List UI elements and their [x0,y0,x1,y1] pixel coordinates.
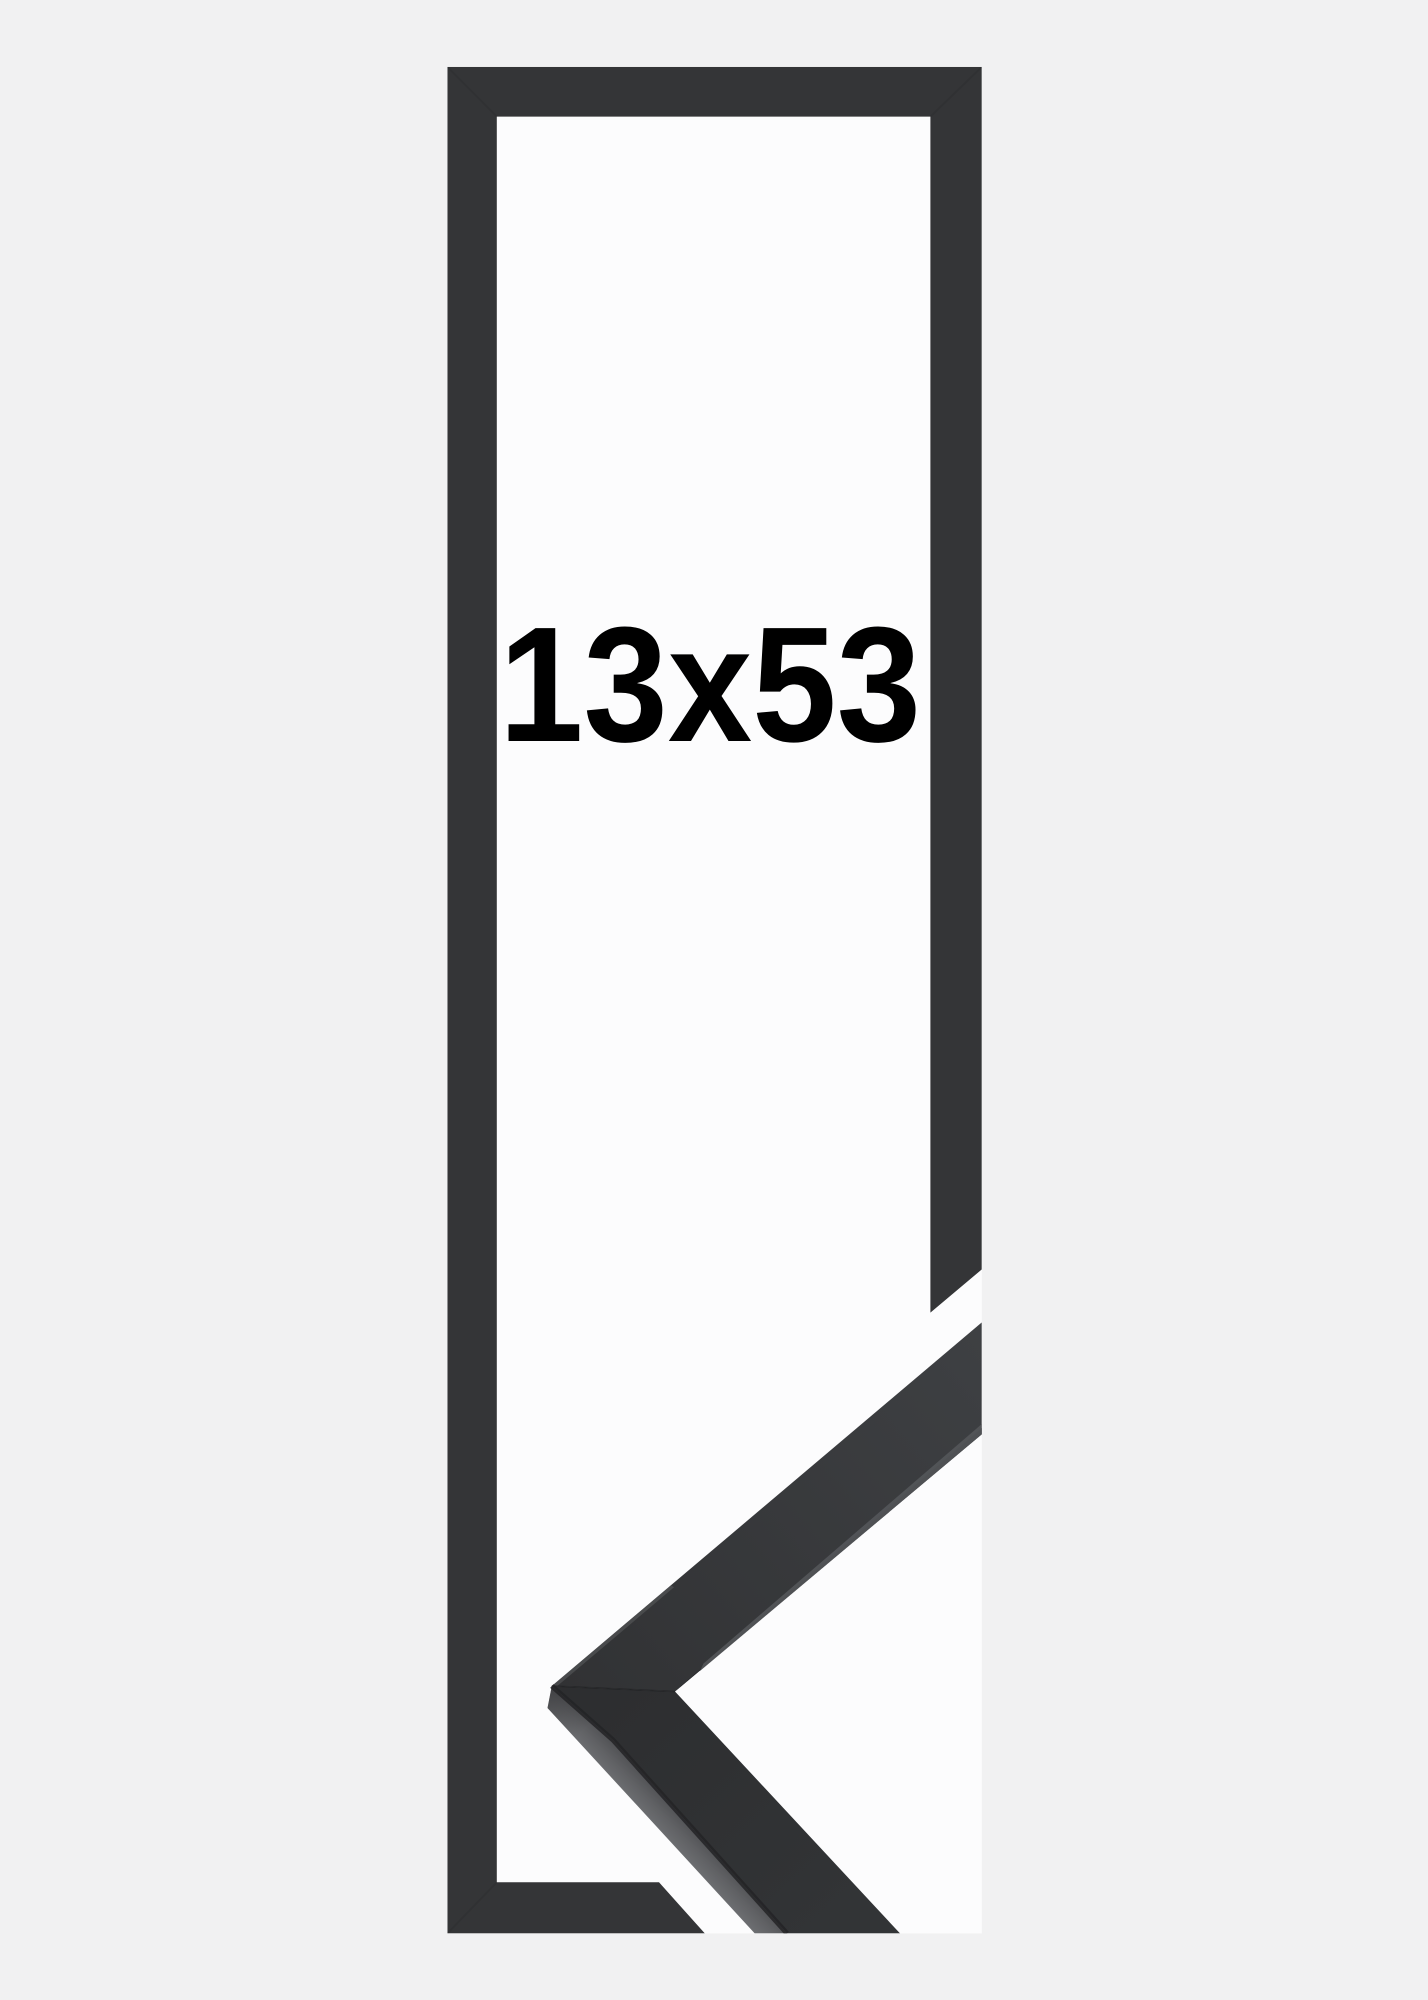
svg-text:13x53: 13x53 [499,593,921,776]
